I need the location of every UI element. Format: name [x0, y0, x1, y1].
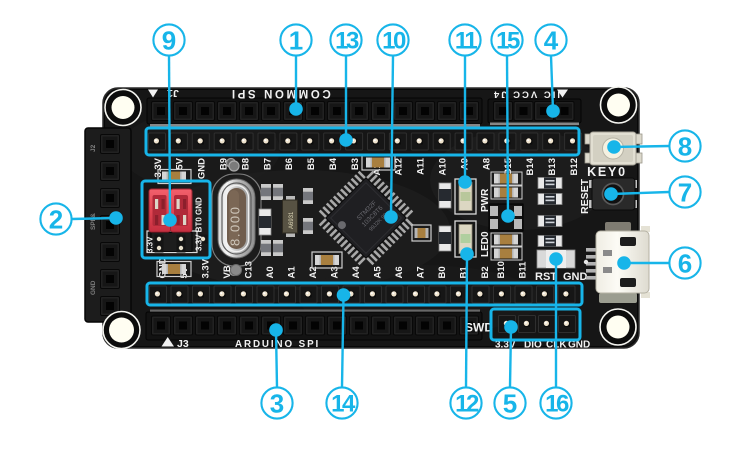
svg-text:RST: RST [535, 271, 557, 283]
svg-text:4: 4 [544, 25, 559, 55]
svg-text:B2: B2 [480, 266, 491, 278]
svg-text:B0: B0 [437, 266, 448, 278]
svg-text:B3: B3 [350, 158, 361, 170]
svg-text:A4: A4 [351, 266, 362, 279]
svg-text:5: 5 [503, 388, 517, 418]
svg-text:14: 14 [331, 391, 356, 418]
svg-text:11: 11 [455, 28, 478, 55]
svg-text:A1: A1 [287, 266, 298, 279]
svg-text:9: 9 [162, 25, 176, 55]
svg-text:GND: GND [197, 158, 208, 179]
svg-text:6: 6 [678, 248, 692, 278]
svg-text:3.3V: 3.3V [146, 236, 155, 253]
svg-text:ARDUINO SPI: ARDUINO SPI [235, 339, 320, 350]
svg-text:A7: A7 [416, 266, 427, 278]
svg-text:GND: GND [90, 280, 97, 295]
svg-text:COMMON SPI: COMMON SPI [229, 87, 330, 99]
svg-text:A6931: A6931 [289, 211, 295, 229]
svg-text:IIC VCC J4: IIC VCC J4 [492, 89, 560, 100]
svg-text:15: 15 [496, 28, 520, 55]
svg-text:B4: B4 [328, 157, 339, 170]
svg-text:3.3V: 3.3V [201, 258, 212, 278]
svg-text:KEY0: KEY0 [587, 165, 627, 179]
svg-text:8: 8 [678, 131, 692, 161]
svg-text:1: 1 [289, 25, 303, 55]
svg-text:LED0: LED0 [480, 231, 491, 257]
svg-text:J2: J2 [90, 144, 97, 152]
svg-text:8.000: 8.000 [228, 205, 243, 246]
svg-text:B6: B6 [284, 158, 295, 170]
svg-text:B13: B13 [547, 158, 558, 175]
svg-text:3: 3 [270, 388, 284, 418]
svg-text:B12: B12 [569, 158, 580, 175]
svg-text:7: 7 [678, 177, 692, 207]
svg-text:A5: A5 [373, 266, 384, 279]
svg-text:2: 2 [49, 204, 63, 234]
svg-text:B7: B7 [262, 158, 273, 170]
svg-text:A11: A11 [416, 157, 427, 175]
svg-text:5V: 5V [175, 157, 186, 169]
svg-text:SWD: SWD [465, 321, 493, 335]
svg-text:B10: B10 [496, 261, 507, 278]
svg-text:J3: J3 [177, 338, 189, 350]
svg-text:16: 16 [545, 391, 569, 418]
svg-text:SPI &: SPI & [90, 213, 97, 230]
svg-text:A6: A6 [394, 266, 405, 278]
svg-text:RESET: RESET [579, 178, 591, 214]
svg-text:A0: A0 [265, 266, 276, 278]
svg-text:A8: A8 [481, 158, 492, 170]
svg-text:B14: B14 [525, 157, 536, 175]
svg-text:GND: GND [563, 271, 588, 283]
svg-text:10: 10 [382, 28, 406, 55]
svg-text:B8: B8 [240, 158, 251, 170]
svg-text:B11: B11 [518, 261, 529, 279]
svg-text:B5: B5 [306, 157, 317, 170]
svg-text:A10: A10 [438, 158, 449, 175]
svg-text:13: 13 [335, 28, 359, 55]
svg-text:12: 12 [455, 391, 479, 418]
svg-text:3.3V BT0 GND: 3.3V BT0 GND [195, 197, 204, 251]
